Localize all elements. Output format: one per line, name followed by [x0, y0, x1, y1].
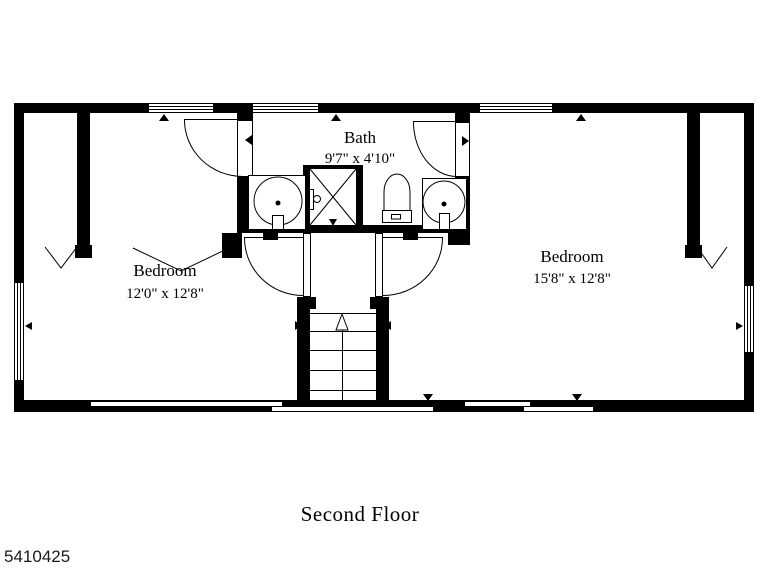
bedroom-right-dimensions: 15'8" x 12'8"	[500, 271, 644, 288]
sink-left-icon	[249, 176, 306, 230]
marker-down-icon	[423, 394, 433, 401]
marker-left-icon	[25, 322, 32, 330]
marker-left-icon	[384, 321, 391, 330]
marker-right-icon	[462, 136, 469, 146]
bedroom-right-label: Bedroom	[510, 248, 634, 267]
bath-label: Bath	[310, 129, 410, 148]
bath-dimensions: 9'7" x 4'10"	[290, 151, 430, 168]
sink-right-icon	[423, 179, 467, 230]
bedroom-left-dimensions: 12'0" x 12'8"	[93, 286, 237, 303]
marker-up-icon	[576, 114, 586, 121]
marker-right-icon	[736, 322, 743, 330]
marker-up-icon	[331, 114, 341, 121]
marker-down-icon	[329, 219, 337, 226]
marker-left-icon	[245, 135, 252, 145]
marker-up-icon	[159, 114, 169, 121]
closet-chevron-left-small-icon	[45, 247, 77, 268]
shower-icon	[310, 169, 357, 225]
stair-up-arrow-icon	[336, 314, 348, 330]
floor-plan: Bath 9'7" x 4'10" Bedroom 12'0" x 12'8" …	[0, 0, 768, 576]
bedroom-left-label: Bedroom	[103, 262, 227, 281]
marker-down-icon	[572, 394, 582, 401]
toilet-icon	[383, 174, 412, 223]
listing-id: 5410425	[4, 547, 144, 567]
marker-right-icon	[295, 321, 302, 330]
closet-chevron-right-icon	[697, 247, 727, 268]
page-title: Second Floor	[258, 503, 462, 526]
